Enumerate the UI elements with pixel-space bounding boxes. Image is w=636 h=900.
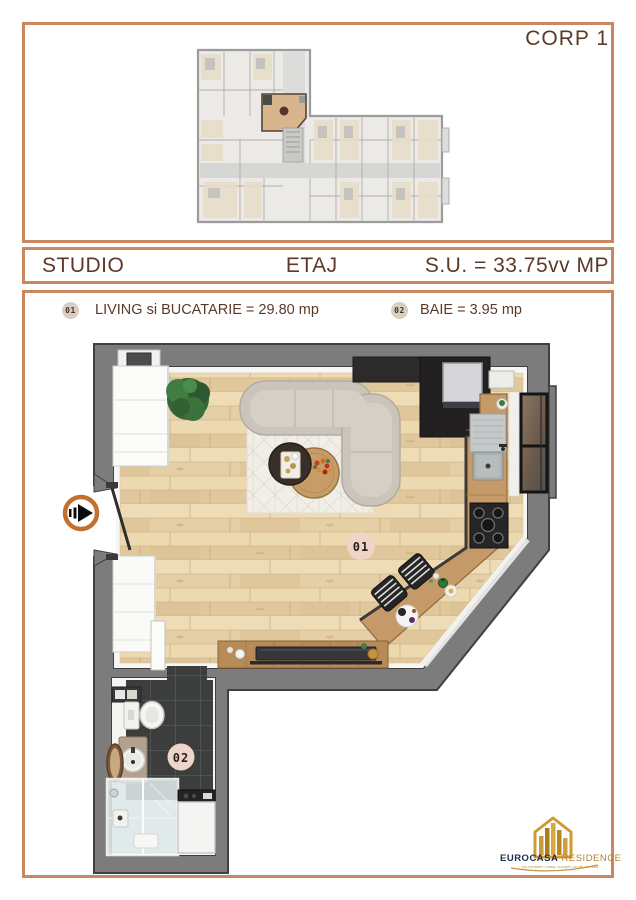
floorplan-sheet: { "frame": { "corp_label": "CORP 1" }, "… — [0, 0, 636, 900]
bathroom-doorway — [167, 666, 207, 680]
room-badge-01: 01 — [347, 532, 375, 560]
wardrobe-lower — [113, 556, 155, 652]
floorplan-graphics: 01 02 — [0, 0, 636, 900]
eurocasa-logo-text: EUROCASA RESIDENCE — [500, 853, 620, 864]
tv-console — [218, 641, 388, 668]
washing-machine — [178, 790, 215, 853]
logo-tagline: Nu cumperi o casa, cumperi un stil de vi… — [500, 864, 620, 869]
kitchen-sink — [470, 414, 507, 480]
logo-suffix: RESIDENCE — [562, 853, 622, 864]
tv-soundbar — [256, 647, 376, 660]
highlighted-unit — [262, 94, 306, 131]
bathroom-door — [151, 621, 165, 670]
svg-text:02: 02 — [173, 751, 189, 765]
stove — [470, 503, 508, 548]
window-right-icon — [509, 392, 547, 496]
unit-floor-plan: 01 02 — [65, 344, 556, 873]
bathroom-niche — [112, 687, 141, 702]
wardrobe-upper — [113, 366, 168, 466]
toilet — [124, 702, 164, 730]
kitchen-cabinet — [489, 371, 514, 388]
round-mirror — [107, 744, 123, 782]
svg-text:01: 01 — [353, 540, 369, 554]
entrance-arrow-icon — [65, 497, 97, 529]
room-badge-02: 02 — [168, 744, 195, 771]
shower-cabin — [107, 779, 178, 855]
building-floor-plan — [198, 50, 449, 222]
fridge — [443, 363, 482, 408]
logo-brand: EUROCASA — [500, 853, 558, 864]
